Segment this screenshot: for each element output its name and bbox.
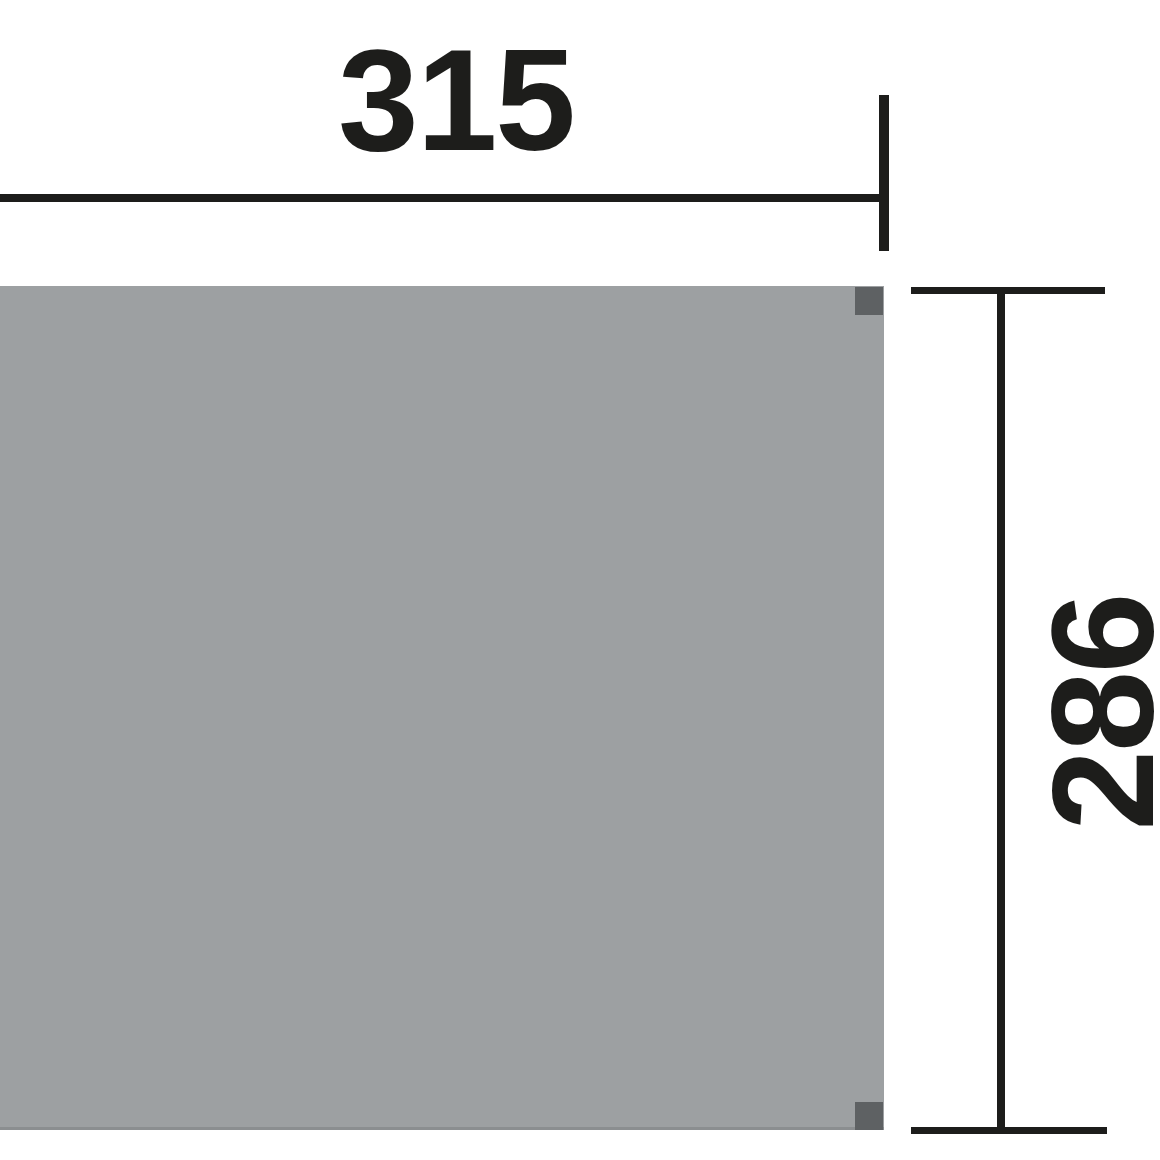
corner-post-bottom-right bbox=[855, 1102, 883, 1130]
floor-panel bbox=[0, 286, 884, 1130]
width-dimension-label: 315 bbox=[276, 28, 636, 173]
height-dimension-bottom-tick bbox=[911, 1127, 1107, 1134]
dimension-drawing: 315 286 bbox=[0, 0, 1160, 1160]
width-dimension-line bbox=[0, 194, 889, 202]
height-dimension-label: 286 bbox=[1031, 533, 1160, 893]
height-dimension-line bbox=[997, 287, 1005, 1134]
height-dimension-top-tick bbox=[911, 287, 1105, 294]
corner-post-top-right bbox=[855, 287, 883, 315]
width-dimension-end-tick bbox=[879, 95, 889, 251]
